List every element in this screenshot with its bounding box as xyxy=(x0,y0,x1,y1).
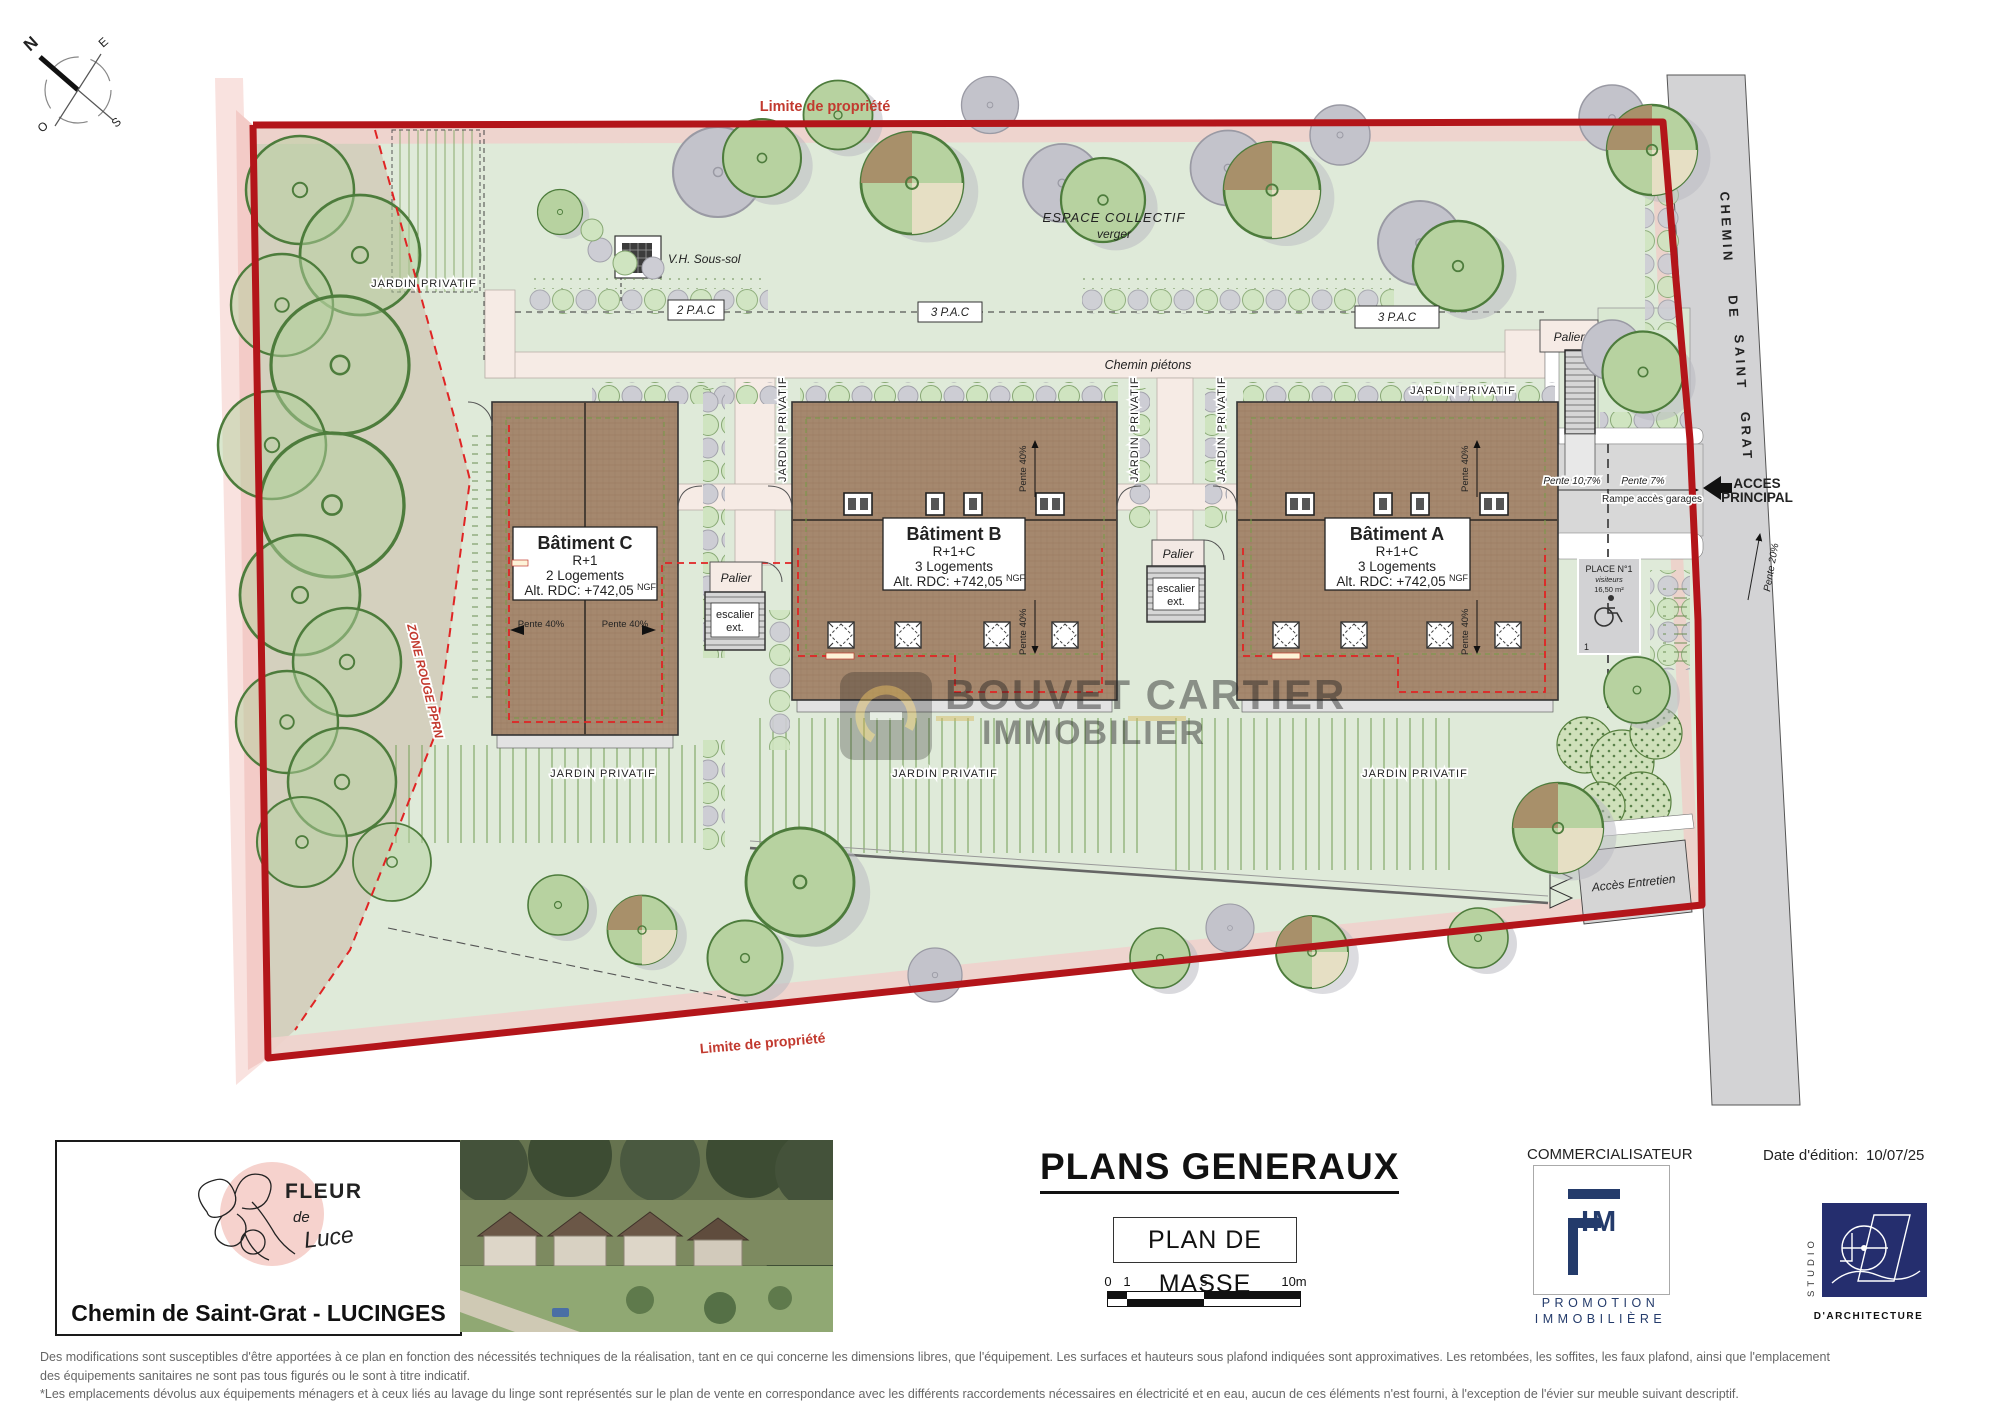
jardin-privatif-top-left: JARDIN PRIVATIF xyxy=(371,278,477,290)
building-b-units: 3 Logements xyxy=(915,559,993,574)
building-a-units: 3 Logements xyxy=(1358,559,1436,574)
place-n1-label: PLACE N°1 xyxy=(1585,564,1632,574)
pente-7-label: Pente 7% xyxy=(1621,476,1664,487)
compass-icon: N E S O xyxy=(20,33,124,136)
fim-logo: IM xyxy=(1533,1165,1670,1295)
logo-fleur: FLEUR xyxy=(285,1180,363,1203)
compass-s: S xyxy=(109,114,124,130)
building-b-alt: Alt. RDC: +742,05 xyxy=(893,574,1002,589)
fleur-de-luce-logo: FLEUR de Luce xyxy=(57,1142,456,1292)
escalier-c-l1: escalier xyxy=(716,609,754,621)
studio-bottom-text: D'ARCHITECTURE xyxy=(1806,1311,1931,1322)
jardin-privatif-bottom-1: JARDIN PRIVATIF xyxy=(550,768,656,780)
building-b-pente-top: Pente 40% xyxy=(1018,445,1029,492)
sheet-title: PLANS GENERAUX xyxy=(1040,1146,1399,1194)
jardin-privatif-bottom-2: JARDIN PRIVATIF xyxy=(892,768,998,780)
limite-propriete-bottom: Limite de propriété xyxy=(699,1030,826,1057)
espace-collectif-label: ESPACE COLLECTIF xyxy=(1043,210,1186,225)
disclaimer-line3: *Les emplacements dévolus aux équipement… xyxy=(40,1385,1970,1404)
vh-sous-sol-label: V.H. Sous-sol xyxy=(668,252,741,266)
verger-label: verger xyxy=(1097,227,1132,241)
pac3-label-2: 3 P.A.C xyxy=(1378,312,1417,324)
fim-promotion: PROMOTION xyxy=(1533,1296,1668,1310)
building-b-pente-bottom: Pente 40% xyxy=(1018,608,1029,655)
jardin-privatif-top-right: JARDIN PRIVATIF xyxy=(1410,385,1516,397)
project-address: Chemin de Saint-Grat - LUCINGES xyxy=(57,1300,460,1327)
building-a-pente-top: Pente 40% xyxy=(1460,445,1471,492)
building-b-floors: R+1+C xyxy=(933,544,976,559)
pente-10-7-label: Pente 10,7% xyxy=(1543,476,1600,487)
pac3-label-1: 3 P.A.C xyxy=(931,307,970,319)
building-a-name: Bâtiment A xyxy=(1350,524,1444,544)
compass-n: N xyxy=(20,33,42,55)
palier-ba-label: Palier xyxy=(1163,547,1195,561)
disclaimer-line1: Des modifications sont susceptibles d'êt… xyxy=(40,1348,1970,1367)
scale-5: 5 xyxy=(1200,1274,1207,1289)
building-b-alt-sup: NGF xyxy=(1006,573,1026,583)
jardin-privatif-bottom-3: JARDIN PRIVATIF xyxy=(1362,768,1468,780)
jardin-privatif-gap-ba-left: JARDIN PRIVATIF xyxy=(1129,376,1141,482)
palier-c-label: Palier xyxy=(721,571,753,585)
pac2-label: 2 P.A.C xyxy=(676,305,716,317)
building-a-floors: R+1+C xyxy=(1376,544,1419,559)
plan-sheet: Bâtiment C R+1 2 Logements Alt. RDC: +74… xyxy=(0,0,2000,1413)
building-c-units: 2 Logements xyxy=(546,568,624,583)
escalier-ba-l1: escalier xyxy=(1157,583,1195,595)
road-word-grat: GRAT xyxy=(1738,411,1756,462)
compass-e: E xyxy=(96,34,111,50)
jardin-privatif-gap-cb: JARDIN PRIVATIF xyxy=(777,376,789,482)
jardin-privatif-gap-ba-right: JARDIN PRIVATIF xyxy=(1216,376,1228,482)
project-logo-box: FLEUR de Luce Chemin de Saint-Grat - LUC… xyxy=(55,1140,462,1336)
escalier-ba-l2: ext. xyxy=(1167,596,1185,608)
date-edition-value: 10/07/25 xyxy=(1866,1147,1924,1164)
compass-o: O xyxy=(35,119,51,136)
place-visiteurs-label: visiteurs xyxy=(1595,575,1623,584)
place-surface-label: 16,50 m² xyxy=(1594,585,1624,594)
studio-vertical-text: STUDIO xyxy=(1806,1200,1817,1297)
building-c-alt-sup: NGF xyxy=(637,582,657,592)
road-word-de: DE xyxy=(1725,295,1741,321)
building-c-name: Bâtiment C xyxy=(537,533,632,553)
building-a-pente-bottom: Pente 40% xyxy=(1460,608,1471,655)
road-word-saint: SAINT xyxy=(1732,334,1750,391)
building-b-name: Bâtiment B xyxy=(906,524,1001,544)
date-edition-label: Date d'édition: xyxy=(1763,1147,1858,1164)
rampe-acces-label: Rampe accès garages xyxy=(1602,494,1702,505)
building-c-pente-left: Pente 40% xyxy=(518,619,565,630)
scale-1: 1 xyxy=(1123,1274,1130,1289)
studio-logo-square xyxy=(1822,1203,1927,1297)
watermark-line1: BOUVET CARTIER xyxy=(945,671,1346,718)
limite-propriete-top: Limite de propriété xyxy=(760,99,891,115)
place-num-label: 1 xyxy=(1584,642,1589,652)
building-a-alt: Alt. RDC: +742,05 xyxy=(1336,574,1445,589)
acces-principal-l1: ACCES xyxy=(1733,476,1780,491)
logo-de: de xyxy=(293,1209,310,1226)
project-photo xyxy=(460,1140,833,1332)
fim-immobiliere: IMMOBILIÈRE xyxy=(1533,1312,1668,1326)
plan-type-label: PLAN DE MASSE xyxy=(1113,1217,1297,1263)
scale-10m: 10m xyxy=(1281,1274,1306,1289)
chemin-pietons-label: Chemin piétons xyxy=(1105,358,1192,372)
escalier-c-l2: ext. xyxy=(726,622,744,634)
site-plan-svg: Bâtiment C R+1 2 Logements Alt. RDC: +74… xyxy=(0,0,2000,1115)
building-a-alt-sup: NGF xyxy=(1449,573,1469,583)
building-a: Bâtiment A R+1+C 3 Logements Alt. RDC: +… xyxy=(1237,402,1558,712)
acces-principal-l2: PRINCIPAL xyxy=(1721,490,1793,505)
building-b: Bâtiment B R+1+C 3 Logements Alt. RDC: +… xyxy=(792,402,1117,712)
building-c-pente-right: Pente 40% xyxy=(602,619,649,630)
scale-0: 0 xyxy=(1104,1274,1111,1289)
logo-luce: Luce xyxy=(302,1221,355,1253)
commercialisateur-label: COMMERCIALISATEUR xyxy=(1527,1146,1673,1163)
building-c-floors: R+1 xyxy=(572,553,597,568)
palier-tr-label: Palier xyxy=(1554,330,1586,344)
studio-architecture-logo: STUDIO D'ARCHITECTURE xyxy=(1806,1200,1931,1330)
building-c-alt: Alt. RDC: +742,05 xyxy=(524,583,633,598)
fim-letters: IM xyxy=(1581,1206,1619,1239)
disclaimer-line2: des équipements sanitaires ne sont pas t… xyxy=(40,1367,1970,1386)
disclaimer: Des modifications sont susceptibles d'êt… xyxy=(40,1348,1970,1404)
